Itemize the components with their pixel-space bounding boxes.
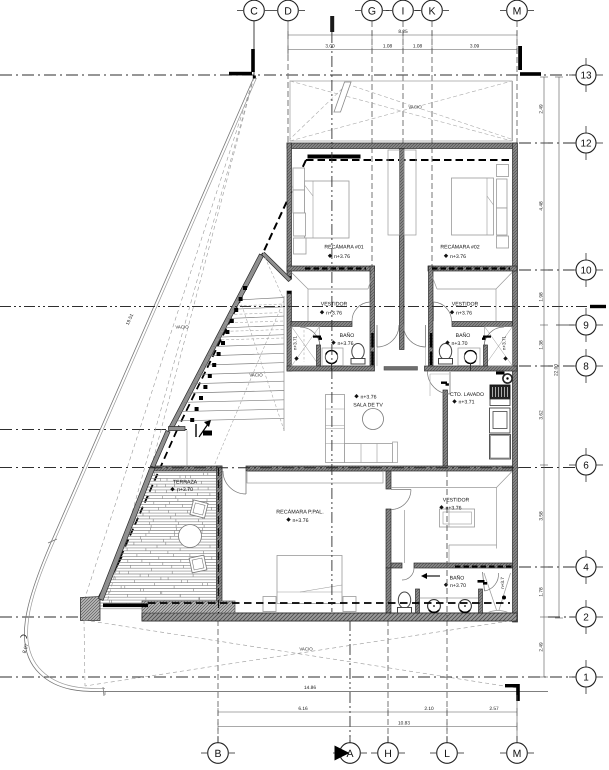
svg-text:n+3.76: n+3.76 <box>361 394 377 400</box>
svg-text:12: 12 <box>580 139 592 150</box>
svg-text:22.00: 22.00 <box>554 364 560 376</box>
svg-text:BAÑO: BAÑO <box>456 332 471 339</box>
svg-text:n+3.70: n+3.70 <box>177 487 193 493</box>
svg-text:RECÁMARA #02: RECÁMARA #02 <box>440 244 479 251</box>
svg-text:n+3.76: n+3.76 <box>338 341 354 347</box>
svg-text:2.57: 2.57 <box>489 706 499 712</box>
svg-text:CTO. LAVADO: CTO. LAVADO <box>450 392 484 398</box>
svg-text:M: M <box>513 748 522 760</box>
svg-text:VACIO: VACIO <box>175 325 189 330</box>
svg-text:3.58: 3.58 <box>539 511 545 521</box>
svg-text:6.16: 6.16 <box>298 706 308 712</box>
svg-text:BAÑO: BAÑO <box>340 332 355 339</box>
svg-text:10: 10 <box>580 266 592 277</box>
svg-text:3.62: 3.62 <box>539 410 545 420</box>
svg-text:C: C <box>250 5 258 17</box>
svg-text:2.49: 2.49 <box>539 642 545 652</box>
svg-text:3.09: 3.09 <box>470 44 480 50</box>
svg-text:3.00: 3.00 <box>325 44 335 50</box>
svg-text:4: 4 <box>583 563 589 574</box>
svg-text:1: 1 <box>583 673 589 684</box>
svg-text:n+3.76: n+3.76 <box>446 506 462 512</box>
svg-text:n+3.7: n+3.7 <box>500 577 505 589</box>
svg-text:n+3.70: n+3.70 <box>450 583 466 589</box>
svg-text:2: 2 <box>583 613 589 624</box>
svg-text:n+3.76: n+3.76 <box>450 254 466 260</box>
svg-text:n+3.71: n+3.71 <box>502 335 507 350</box>
svg-text:n+3.76: n+3.76 <box>326 310 342 316</box>
svg-text:1.78: 1.78 <box>539 587 545 597</box>
svg-text:I: I <box>402 5 405 17</box>
svg-text:n+3.70: n+3.70 <box>452 341 468 347</box>
svg-text:4.48: 4.48 <box>539 201 545 211</box>
svg-text:D: D <box>284 5 292 17</box>
svg-text:2.49: 2.49 <box>539 104 545 114</box>
svg-text:VACIO: VACIO <box>249 373 263 378</box>
svg-text:n+3.76: n+3.76 <box>456 310 472 316</box>
svg-text:VACIO: VACIO <box>408 105 422 110</box>
svg-text:L: L <box>444 748 450 760</box>
svg-text:TERRAZA: TERRAZA <box>173 480 198 486</box>
svg-text:1.38: 1.38 <box>539 340 545 350</box>
svg-text:6: 6 <box>583 461 589 472</box>
svg-text:n+3.76: n+3.76 <box>334 254 350 260</box>
svg-text:VACIO: VACIO <box>299 647 313 652</box>
svg-text:G: G <box>368 5 376 17</box>
svg-text:RECÁMARA P.PAL.: RECÁMARA P.PAL. <box>276 509 323 516</box>
svg-text:n+3.76: n+3.76 <box>293 518 309 524</box>
svg-text:B: B <box>214 748 221 760</box>
svg-text:10.83: 10.83 <box>398 721 410 727</box>
svg-text:8: 8 <box>583 362 589 373</box>
svg-text:9: 9 <box>583 321 589 332</box>
svg-text:13: 13 <box>580 71 592 82</box>
svg-text:n+3.71: n+3.71 <box>293 335 298 350</box>
svg-text:n+3.71: n+3.71 <box>459 400 475 406</box>
svg-text:K: K <box>428 5 435 17</box>
svg-text:RECÁMARA #01: RECÁMARA #01 <box>324 244 363 251</box>
svg-text:BAÑO: BAÑO <box>450 575 465 582</box>
svg-text:1.08: 1.08 <box>383 44 393 50</box>
svg-text:SALA DE TV: SALA DE TV <box>353 403 383 409</box>
svg-text:M: M <box>513 5 522 17</box>
svg-text:14.86: 14.86 <box>304 685 316 691</box>
svg-text:H: H <box>384 748 392 760</box>
svg-text:1.98: 1.98 <box>539 292 545 302</box>
svg-text:1.08: 1.08 <box>413 44 423 50</box>
svg-text:2.10: 2.10 <box>424 706 434 712</box>
